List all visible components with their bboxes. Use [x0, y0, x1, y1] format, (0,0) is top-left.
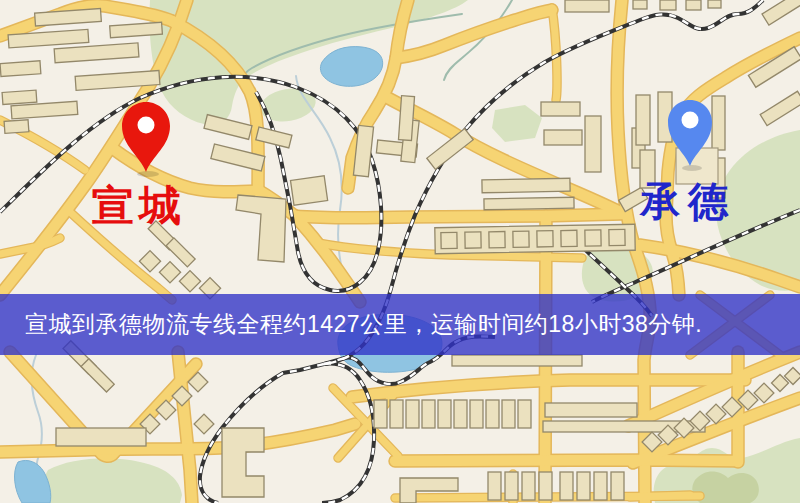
destination-label: 承德 — [639, 177, 736, 224]
origin-label: 宣城 — [92, 181, 186, 230]
route-info-text: 宣城到承德物流专线全程约1427公里，运输时间约18小时38分钟. — [25, 309, 702, 340]
destination-pin-hole — [682, 112, 699, 129]
route-info-banner: 宣城到承德物流专线全程约1427公里，运输时间约18小时38分钟. — [0, 294, 800, 355]
map-screenshot: 宣城 承德 宣城到承德物流专线全程约1427公里，运输时间约18小时38分钟. — [0, 0, 800, 503]
map-canvas[interactable]: 宣城 承德 — [0, 0, 800, 503]
origin-pin-hole — [138, 117, 155, 134]
